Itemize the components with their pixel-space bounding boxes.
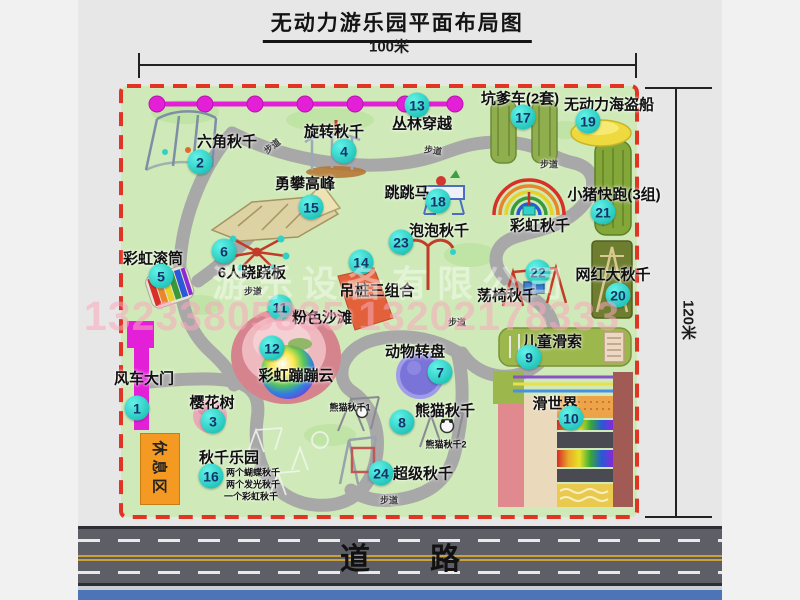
animal-turntable-structure (398, 353, 442, 397)
road-label-left: 道 (340, 534, 370, 578)
width-dimension-label: 100米 (369, 36, 409, 57)
park-layout-map: 无动力游乐园平面布局图 100米 120米 休息区 风车大门1六角秋千2樱花树3… (0, 0, 800, 600)
cherry-tree-structure (193, 399, 227, 433)
slide-world-structure (493, 371, 633, 507)
pink-beach-structure (231, 308, 341, 404)
rainbow-cloud-structure (261, 345, 315, 399)
piggy-run-structure (595, 141, 631, 235)
height-dimension-label: 120米 (679, 300, 700, 340)
bottom-blue-strip (78, 590, 722, 600)
pirate-ship-structure (571, 120, 631, 146)
zipline-structure (499, 328, 631, 366)
rest-area-label: 休息区 (150, 434, 171, 504)
road-label: 道 路 (78, 529, 722, 583)
road-label-right: 路 (430, 534, 460, 578)
big-swing-structure (592, 241, 632, 318)
rest-area: 休息区 (140, 433, 180, 505)
road: 道 路 (78, 526, 722, 586)
